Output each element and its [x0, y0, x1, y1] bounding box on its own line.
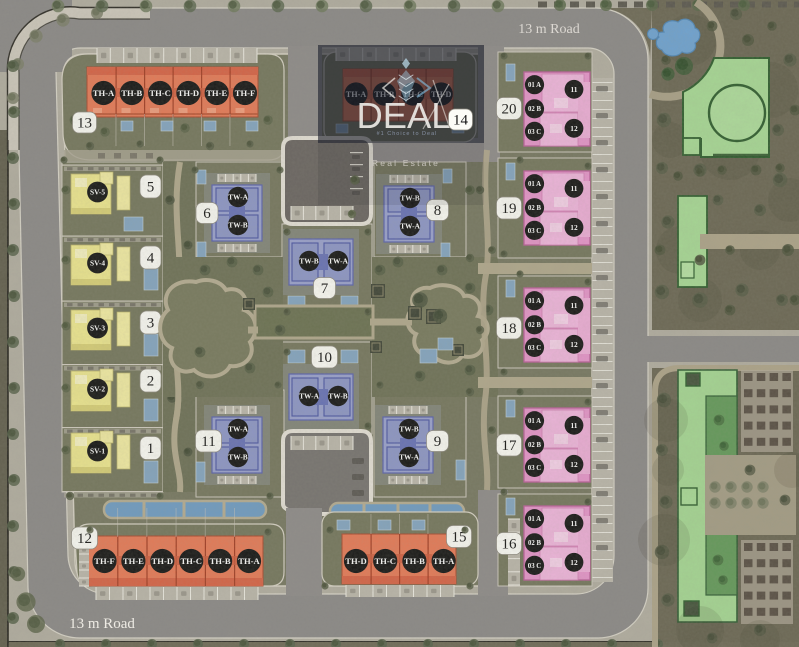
- svg-text:14: 14: [453, 113, 469, 129]
- svg-text:#1 Choice to Deal: #1 Choice to Deal: [377, 131, 438, 137]
- svg-text:13 m Road: 13 m Road: [518, 22, 579, 37]
- svg-text:Real Estate: Real Estate: [372, 158, 440, 168]
- svg-text:13 m Road: 13 m Road: [69, 616, 135, 632]
- svg-text:DEAL: DEAL: [357, 95, 452, 136]
